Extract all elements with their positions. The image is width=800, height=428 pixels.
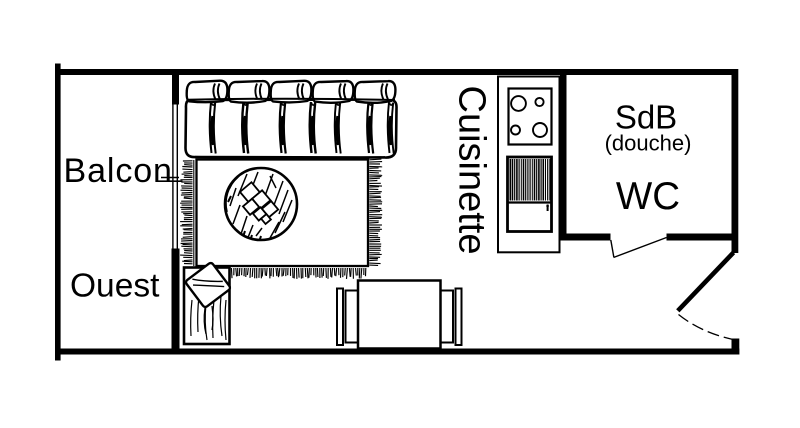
svg-text:WC: WC <box>616 175 680 218</box>
svg-text:Ouest: Ouest <box>70 268 160 305</box>
svg-text:(douche): (douche) <box>605 131 692 156</box>
svg-text:Cuisinette: Cuisinette <box>451 86 493 255</box>
svg-text:Balcon: Balcon <box>64 152 173 190</box>
